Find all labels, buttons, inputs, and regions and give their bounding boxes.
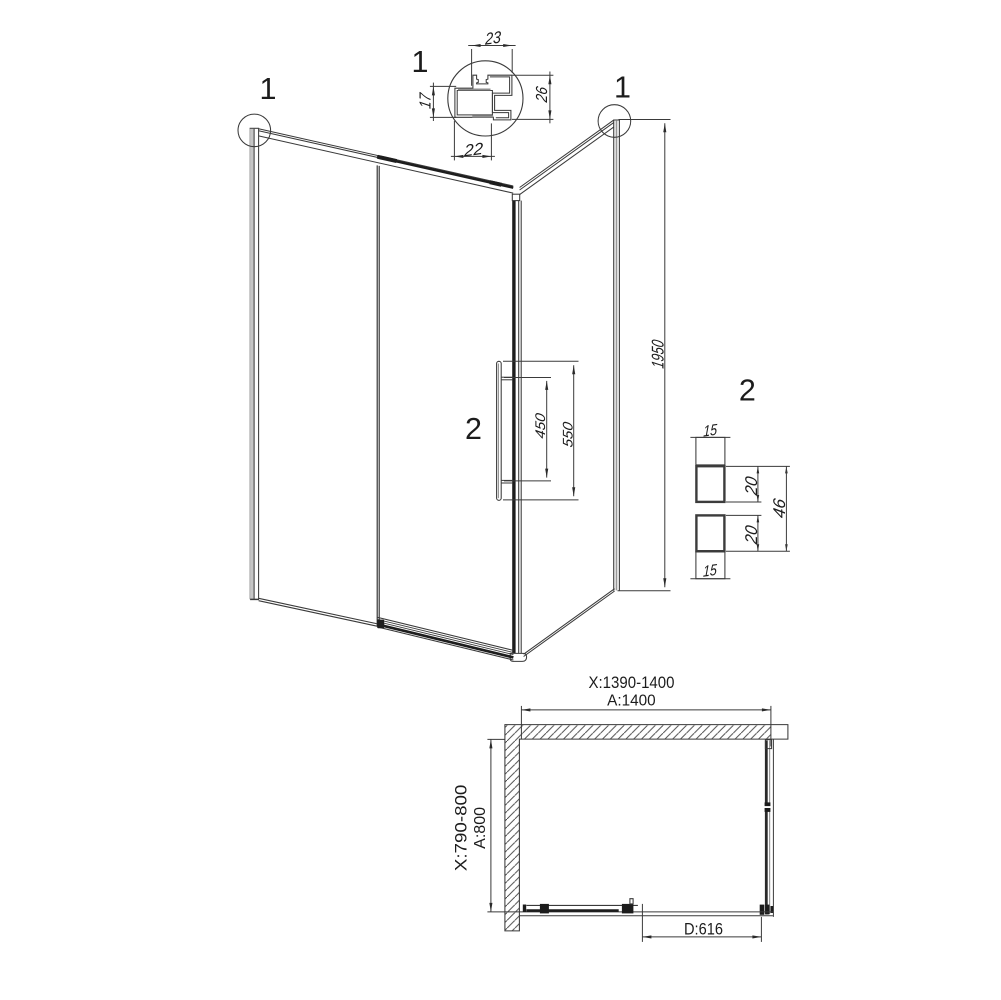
svg-text:26: 26	[533, 85, 551, 104]
svg-text:2: 2	[739, 374, 756, 408]
svg-text:20: 20	[741, 474, 761, 497]
svg-text:X:1390-1400: X:1390-1400	[589, 673, 675, 692]
svg-text:22: 22	[463, 139, 484, 161]
svg-text:15: 15	[703, 562, 718, 581]
svg-text:D:616: D:616	[684, 919, 723, 938]
svg-text:15: 15	[703, 422, 718, 441]
svg-text:2: 2	[465, 412, 482, 446]
svg-text:23: 23	[484, 27, 502, 49]
svg-text:A:1400: A:1400	[607, 693, 656, 710]
svg-text:1: 1	[260, 72, 277, 106]
svg-text:1950: 1950	[648, 338, 668, 370]
svg-text:1: 1	[614, 71, 631, 105]
svg-text:X:790-800: X:790-800	[451, 785, 470, 872]
svg-text:1: 1	[412, 45, 429, 79]
svg-text:450: 450	[532, 412, 548, 440]
svg-text:550: 550	[559, 420, 575, 448]
svg-text:A:800: A:800	[472, 807, 489, 849]
svg-text:20: 20	[741, 523, 761, 546]
svg-text:46: 46	[769, 497, 789, 520]
